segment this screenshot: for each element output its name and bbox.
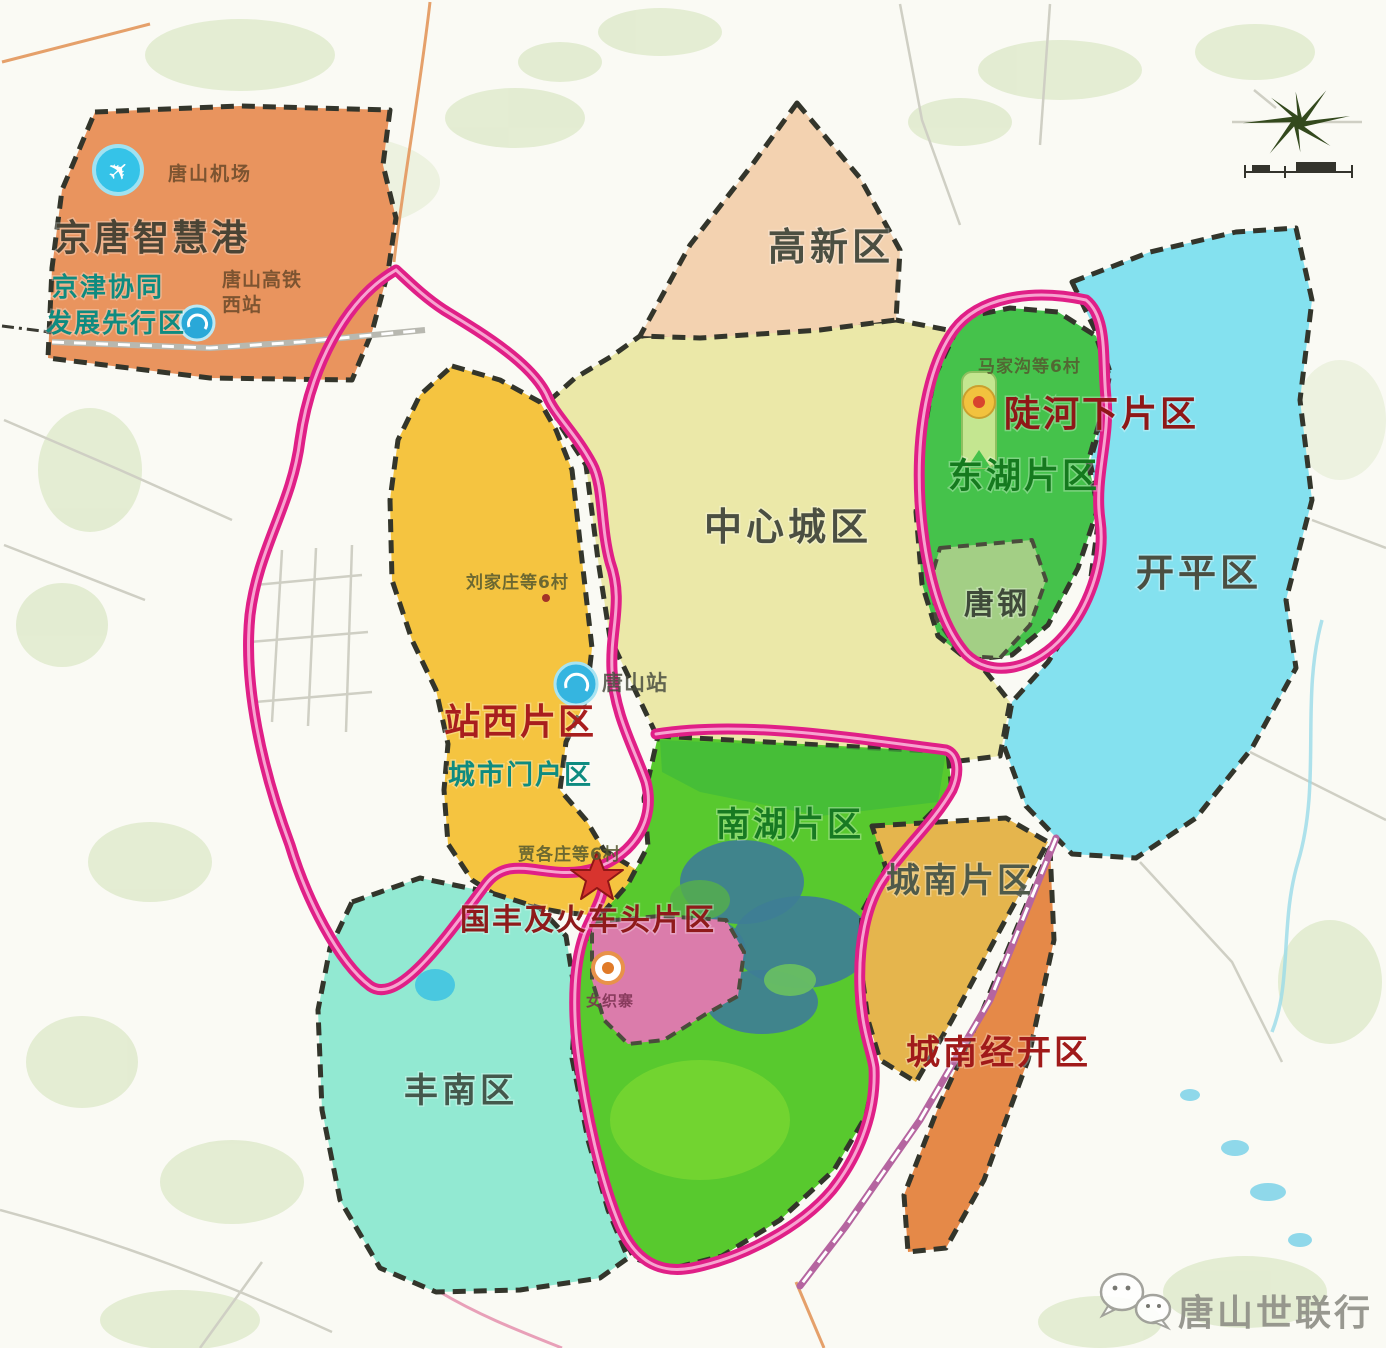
label-tanggang: 唐钢 (964, 587, 1030, 622)
label-guofeng: 国丰及火车头片区 (460, 903, 716, 938)
tangshan-planning-map: ✈ 京唐智慧港 京津协同 发展先行区 唐山机场 唐山高铁 西站 高新区 中心城区… (0, 0, 1386, 1348)
watermark-text: 唐山世联行 (1178, 1292, 1373, 1334)
label-kaiping: 开平区 (1136, 551, 1262, 595)
label-donghu: 东湖片区 (948, 457, 1100, 497)
label-airport: 唐山机场 (168, 162, 252, 185)
village-dot (542, 594, 550, 602)
label-village-donghu: 马家沟等6村 (978, 356, 1081, 377)
label-village-zhanxi: 刘家庄等6村 (466, 572, 569, 593)
label-village-star: 贾各庄等6村 (518, 844, 621, 865)
label-chengnan-jingkai: 城南经开区 (906, 1033, 1091, 1073)
fengnan-lake (415, 969, 455, 1001)
label-hsr-1: 唐山高铁 (222, 268, 302, 291)
label-gaoxin: 高新区 (768, 225, 894, 269)
label-jingtang-sub2: 发展先行区 (45, 308, 186, 339)
label-center-city: 中心城区 (704, 505, 872, 549)
ribbon-badge-icon (962, 372, 996, 468)
label-station: 唐山站 (602, 671, 668, 695)
label-fengnan: 丰南区 (404, 1071, 518, 1111)
label-chengnan: 城南片区 (886, 861, 1034, 901)
station-icon (555, 663, 597, 705)
label-donghu-red: 陡河下片区 (1004, 394, 1199, 435)
label-jingtang-sub1: 京津协同 (52, 272, 164, 303)
label-jingtang-port: 京唐智慧港 (55, 217, 250, 259)
label-zhanxi: 站西片区 (444, 702, 596, 743)
label-pink-zone: 女织寨 (586, 992, 634, 1010)
landmark-icon (593, 953, 623, 983)
label-nanhu: 南湖片区 (716, 805, 864, 845)
label-zhanxi-sub: 城市门户区 (448, 759, 593, 791)
label-hsr-2: 西站 (222, 293, 262, 316)
airport-icon: ✈ (94, 146, 142, 194)
